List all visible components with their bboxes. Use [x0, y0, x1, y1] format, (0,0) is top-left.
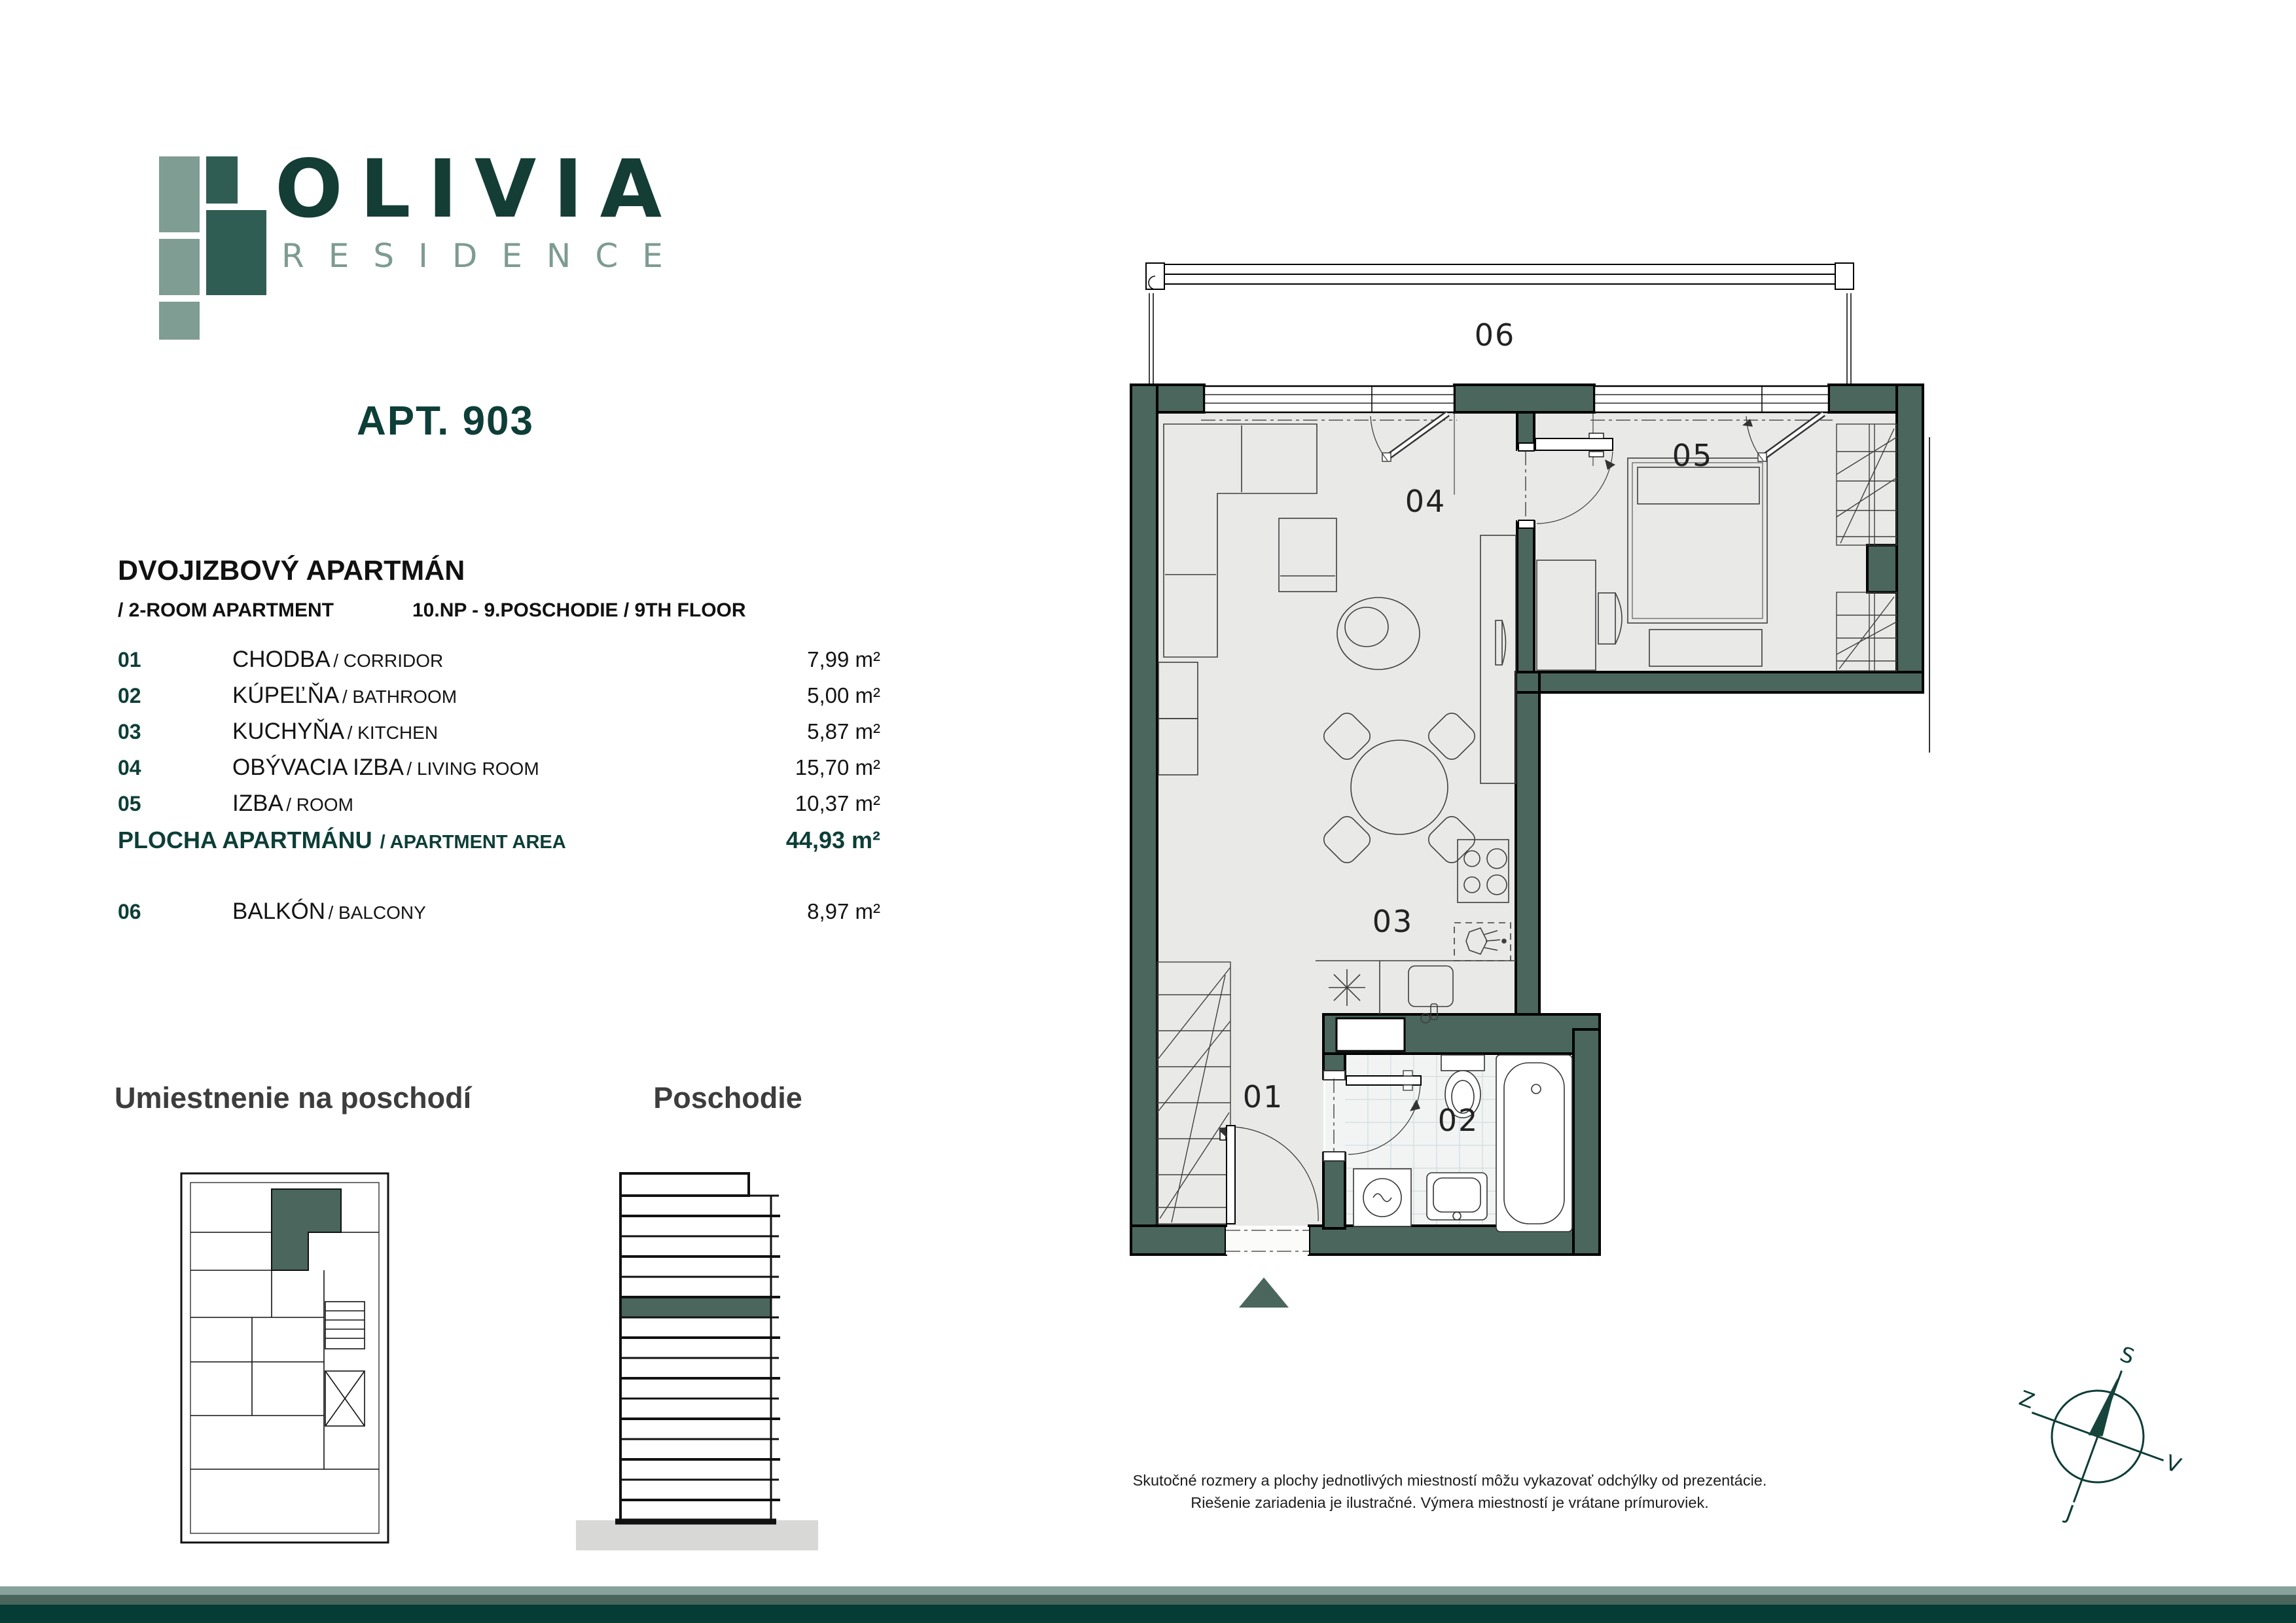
- room-name: KÚPEĽŇA / BATHROOM: [190, 683, 807, 709]
- location-section-title: Umiestnenie na poschodí: [115, 1081, 471, 1115]
- apartment-type-sk: DVOJIZBOVÝ APARTMÁN: [118, 555, 465, 587]
- room-name-en: / BALCONY: [328, 902, 425, 923]
- building-elevation: [576, 1162, 818, 1554]
- entrance-arrow-icon: [1239, 1277, 1289, 1308]
- room-code: 03: [118, 720, 190, 744]
- plan-label-02: 02: [1438, 1103, 1479, 1138]
- room-name-sk: IZBA: [232, 791, 283, 816]
- room-area: 5,87 m²: [807, 719, 880, 744]
- total-label-en: / APARTMENT AREA: [372, 832, 786, 853]
- room-name: KUCHYŇA / KITCHEN: [190, 719, 807, 745]
- total-area-row: PLOCHA APARTMÁNU / APARTMENT AREA 44,93 …: [118, 827, 880, 863]
- compass-icon: S V J Z: [2003, 1329, 2193, 1544]
- room-area: 7,99 m²: [807, 647, 880, 672]
- fridge-snowflake: [1329, 969, 1365, 1006]
- room-name-sk: OBÝVACIA IZBA: [232, 755, 404, 780]
- footer-band-light: [0, 1586, 2296, 1595]
- footer-band-mid: [0, 1595, 2296, 1605]
- room-name: OBÝVACIA IZBA / LIVING ROOM: [190, 755, 795, 781]
- disclaimer-line-1: Skutočné rozmery a plochy jednotlivých m…: [1018, 1469, 1882, 1491]
- room-code: 04: [118, 756, 190, 780]
- room-name-sk: KÚPEĽŇA: [232, 683, 339, 708]
- room-name-en: / LIVING ROOM: [406, 758, 539, 779]
- room-name-en: / CORRIDOR: [333, 651, 443, 671]
- plan-label-03: 03: [1372, 904, 1414, 939]
- total-label-sk: PLOCHA APARTMÁNU: [118, 827, 372, 854]
- compass-north: S: [2117, 1342, 2138, 1370]
- logo-mark-icon: [159, 155, 270, 371]
- room-code: 01: [118, 648, 190, 672]
- table-row: 03 KUCHYŇA / KITCHEN 5,87 m²: [118, 719, 880, 755]
- room-name-sk: KUCHYŇA: [232, 719, 344, 744]
- elevation-floors: [615, 1173, 780, 1523]
- plan-label-04: 04: [1405, 484, 1446, 519]
- room-code: 06: [118, 900, 190, 924]
- floor-section-title: Poschodie: [630, 1081, 826, 1115]
- floor-key-plan: [173, 1162, 396, 1554]
- room-name-en: / ROOM: [286, 794, 353, 815]
- compass-south: J: [2062, 1499, 2077, 1525]
- washbasin: [1427, 1173, 1487, 1220]
- footer-band-dark: [0, 1605, 2296, 1623]
- spacer: [118, 863, 880, 899]
- room-area: 5,00 m²: [807, 683, 880, 708]
- highlighted-floor: [620, 1297, 771, 1317]
- plan-label-01: 01: [1243, 1079, 1284, 1115]
- room-name-en: / KITCHEN: [348, 722, 438, 743]
- toilet-tank: [1441, 1055, 1484, 1071]
- bathtub: [1496, 1055, 1572, 1232]
- room-area: 8,97 m²: [807, 899, 880, 924]
- table-row: 04 OBÝVACIA IZBA / LIVING ROOM 15,70 m²: [118, 755, 880, 791]
- floorplan-sheet: OLIVIA RESIDENCE APT. 903 DVOJIZBOVÝ APA…: [0, 0, 2296, 1623]
- table-row-balcony: 06 BALKÓN / BALCONY 8,97 m²: [118, 899, 880, 935]
- ground: [576, 1520, 818, 1550]
- disclaimer: Skutočné rozmery a plochy jednotlivých m…: [1018, 1469, 1882, 1514]
- table-row: 02 KÚPEĽŇA / BATHROOM 5,00 m²: [118, 683, 880, 719]
- disclaimer-line-2: Riešenie zariadenia je ilustračné. Výmer…: [1018, 1491, 1882, 1514]
- table-row: 05 IZBA / ROOM 10,37 m²: [118, 791, 880, 827]
- compass-west: Z: [2016, 1385, 2038, 1414]
- table-row: 01 CHODBA / CORRIDOR 7,99 m²: [118, 647, 880, 683]
- plan-label-05: 05: [1672, 438, 1713, 473]
- room-code: 02: [118, 684, 190, 708]
- room-area: 15,70 m²: [795, 755, 880, 780]
- room-name-sk: BALKÓN: [232, 899, 325, 924]
- logo-title: OLIVIA: [275, 143, 679, 236]
- total-area-value: 44,93 m²: [786, 827, 880, 854]
- room-name: CHODBA / CORRIDOR: [190, 647, 807, 673]
- apartment-type-en: / 2-ROOM APARTMENT: [118, 599, 334, 622]
- room-table: 01 CHODBA / CORRIDOR 7,99 m² 02 KÚPEĽŇA …: [118, 647, 880, 935]
- main-floor-plan: 06 04 05 03 01 02: [1113, 249, 1977, 1335]
- compass-east: V: [2162, 1450, 2185, 1478]
- compass-needle: [2089, 1375, 2123, 1440]
- logo-subtitle: RESIDENCE: [281, 237, 687, 275]
- room-name: IZBA / ROOM: [190, 791, 795, 817]
- apartment-floor-info: 10.NP - 9.POSCHODIE / 9TH FLOOR: [412, 599, 746, 622]
- plan-label-06: 06: [1475, 317, 1516, 353]
- room-name-sk: CHODBA: [232, 647, 331, 672]
- page-title: APT. 903: [357, 398, 534, 444]
- room-name: BALKÓN / BALCONY: [190, 899, 807, 925]
- room-name-en: / BATHROOM: [342, 687, 457, 707]
- highlighted-unit: [272, 1189, 341, 1270]
- room-area: 10,37 m²: [795, 791, 880, 816]
- room-code: 05: [118, 792, 190, 816]
